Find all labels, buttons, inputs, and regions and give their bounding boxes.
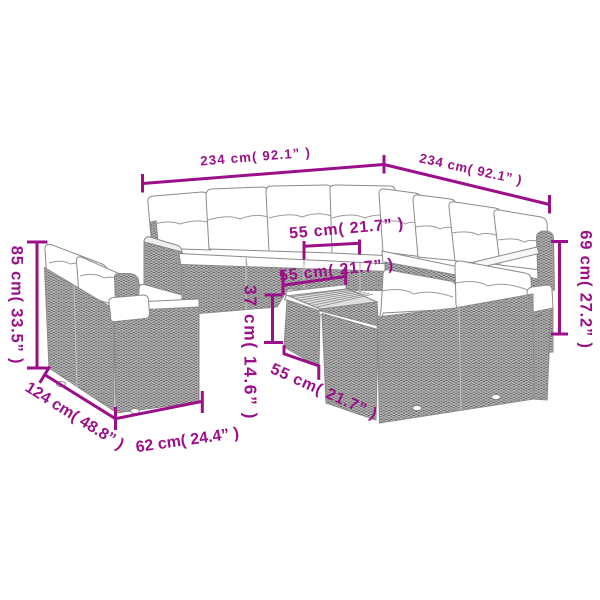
svg-text:69 cm( 27.2” ): 69 cm( 27.2” ) [577, 230, 595, 349]
svg-text:85 cm( 33.5” ): 85 cm( 33.5” ) [8, 246, 26, 365]
svg-text:37 cm( 14.6” ): 37 cm( 14.6” ) [241, 285, 261, 420]
